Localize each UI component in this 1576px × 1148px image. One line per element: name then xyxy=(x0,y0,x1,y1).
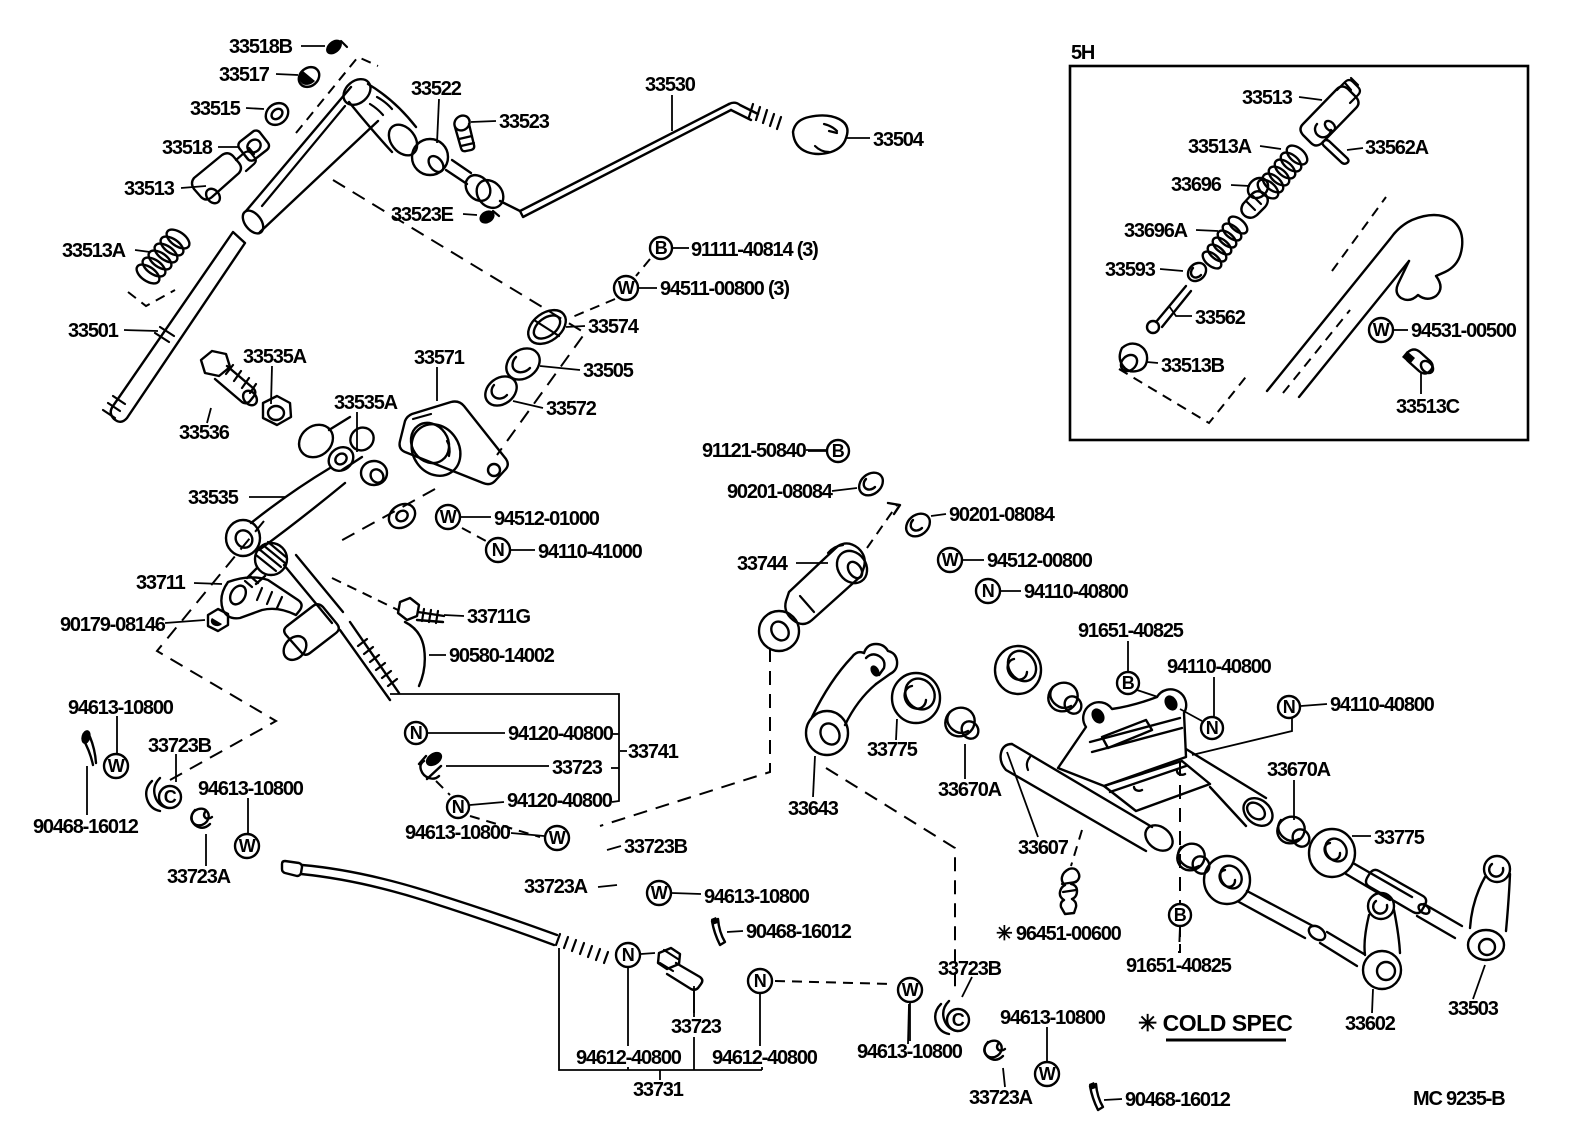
svg-text:33503: 33503 xyxy=(1448,998,1499,1020)
svg-text:33711: 33711 xyxy=(136,572,186,594)
svg-text:33723A: 33723A xyxy=(969,1087,1033,1109)
svg-text:33504: 33504 xyxy=(873,129,925,151)
svg-text:33562A: 33562A xyxy=(1365,137,1429,159)
svg-text:N: N xyxy=(410,723,423,743)
svg-text:W: W xyxy=(1039,1064,1056,1084)
svg-text:33562: 33562 xyxy=(1195,307,1246,329)
svg-text:✳ COLD SPEC: ✳ COLD SPEC xyxy=(1138,1010,1292,1036)
svg-text:33723B: 33723B xyxy=(148,735,212,757)
svg-text:W: W xyxy=(549,828,566,848)
svg-text:91651-40825: 91651-40825 xyxy=(1126,955,1232,977)
svg-text:5H: 5H xyxy=(1071,42,1095,64)
svg-text:90468-16012: 90468-16012 xyxy=(33,816,139,838)
svg-text:33723B: 33723B xyxy=(624,836,688,858)
svg-text:W: W xyxy=(239,836,256,856)
svg-text:33518: 33518 xyxy=(162,137,213,159)
svg-text:33513: 33513 xyxy=(124,178,175,200)
svg-text:90468-16012: 90468-16012 xyxy=(1125,1089,1231,1111)
svg-text:33518B: 33518B xyxy=(229,36,293,58)
svg-text:94120-40800: 94120-40800 xyxy=(508,723,614,745)
svg-text:W: W xyxy=(651,883,668,903)
svg-text:94511-00800 (3): 94511-00800 (3) xyxy=(660,278,789,300)
svg-text:33530: 33530 xyxy=(645,74,696,96)
svg-text:33602: 33602 xyxy=(1345,1013,1396,1035)
svg-text:33536: 33536 xyxy=(179,422,230,444)
svg-text:N: N xyxy=(492,540,505,560)
svg-text:91111-40814 (3): 91111-40814 (3) xyxy=(691,239,818,261)
svg-text:MC 9235-B: MC 9235-B xyxy=(1413,1088,1505,1110)
svg-text:33513A: 33513A xyxy=(62,240,126,262)
svg-text:W: W xyxy=(902,980,919,1000)
svg-text:90201-08084: 90201-08084 xyxy=(727,481,834,503)
svg-text:90201-08084: 90201-08084 xyxy=(949,504,1056,526)
svg-text:N: N xyxy=(982,581,995,601)
svg-text:N: N xyxy=(622,945,635,965)
svg-text:94612-40800: 94612-40800 xyxy=(576,1047,682,1069)
svg-text:B: B xyxy=(655,238,668,258)
svg-text:W: W xyxy=(942,550,959,570)
svg-text:94613-10800: 94613-10800 xyxy=(198,778,304,800)
svg-text:33535A: 33535A xyxy=(334,392,398,414)
svg-text:33723B: 33723B xyxy=(938,958,1002,980)
svg-text:N: N xyxy=(452,797,465,817)
svg-text:33696: 33696 xyxy=(1171,174,1222,196)
svg-text:N: N xyxy=(1283,697,1296,717)
svg-text:33513: 33513 xyxy=(1242,87,1293,109)
svg-text:33607: 33607 xyxy=(1018,837,1069,859)
svg-text:94110-40800: 94110-40800 xyxy=(1024,581,1129,603)
svg-text:33522: 33522 xyxy=(411,78,462,100)
svg-text:33517: 33517 xyxy=(219,64,270,86)
svg-text:90468-16012: 90468-16012 xyxy=(746,921,852,943)
svg-text:B: B xyxy=(832,441,845,461)
svg-text:33523: 33523 xyxy=(499,111,550,133)
svg-text:94512-01000: 94512-01000 xyxy=(494,508,600,530)
svg-text:33723: 33723 xyxy=(671,1016,722,1038)
svg-text:33515: 33515 xyxy=(190,98,241,120)
svg-text:C: C xyxy=(952,1010,965,1030)
svg-text:94531-00500: 94531-00500 xyxy=(1411,320,1517,342)
svg-text:94613-10800: 94613-10800 xyxy=(405,822,511,844)
svg-text:33723: 33723 xyxy=(552,757,603,779)
svg-text:33505: 33505 xyxy=(583,360,634,382)
svg-text:94110-40800: 94110-40800 xyxy=(1167,656,1272,678)
svg-text:33574: 33574 xyxy=(588,316,640,338)
svg-text:94613-10800: 94613-10800 xyxy=(68,697,174,719)
svg-text:90580-14002: 90580-14002 xyxy=(449,645,555,667)
svg-text:33523E: 33523E xyxy=(391,204,454,226)
svg-text:33535: 33535 xyxy=(188,487,239,509)
svg-text:94120-40800: 94120-40800 xyxy=(507,790,613,812)
svg-text:33643: 33643 xyxy=(788,798,839,820)
svg-text:C: C xyxy=(164,787,177,807)
svg-text:W: W xyxy=(108,756,125,776)
svg-text:94110-41000: 94110-41000 xyxy=(538,541,643,563)
svg-text:33571: 33571 xyxy=(414,347,465,369)
svg-text:33775: 33775 xyxy=(1374,827,1425,849)
svg-text:94613-10800: 94613-10800 xyxy=(857,1041,963,1063)
svg-text:N: N xyxy=(754,971,767,991)
svg-text:91121-50840: 91121-50840 xyxy=(702,440,807,462)
svg-text:N: N xyxy=(1206,718,1219,738)
svg-text:94613-10800: 94613-10800 xyxy=(704,886,810,908)
svg-text:33670A: 33670A xyxy=(938,779,1002,801)
svg-text:33744: 33744 xyxy=(737,553,789,575)
svg-text:B: B xyxy=(1174,905,1187,925)
svg-text:94110-40800: 94110-40800 xyxy=(1330,694,1435,716)
svg-text:33513A: 33513A xyxy=(1188,136,1252,158)
svg-text:33513C: 33513C xyxy=(1396,396,1460,418)
svg-text:33775: 33775 xyxy=(867,739,918,761)
svg-text:90179-08146: 90179-08146 xyxy=(60,614,166,636)
svg-text:94512-00800: 94512-00800 xyxy=(987,550,1093,572)
svg-text:91651-40825: 91651-40825 xyxy=(1078,620,1184,642)
svg-text:33593: 33593 xyxy=(1105,259,1156,281)
svg-text:33711G: 33711G xyxy=(467,606,531,628)
svg-text:33670A: 33670A xyxy=(1267,759,1331,781)
svg-text:33696A: 33696A xyxy=(1124,220,1188,242)
svg-text:33501: 33501 xyxy=(68,320,119,342)
svg-text:94613-10800: 94613-10800 xyxy=(1000,1007,1106,1029)
svg-text:33723A: 33723A xyxy=(524,876,588,898)
svg-text:33723A: 33723A xyxy=(167,866,231,888)
svg-text:W: W xyxy=(1373,320,1390,340)
svg-text:94612-40800: 94612-40800 xyxy=(712,1047,818,1069)
svg-text:B: B xyxy=(1122,673,1135,693)
svg-text:33731: 33731 xyxy=(633,1079,684,1101)
svg-text:✳ 96451-00600: ✳ 96451-00600 xyxy=(996,923,1122,945)
svg-text:33535A: 33535A xyxy=(243,346,307,368)
svg-text:W: W xyxy=(440,507,457,527)
svg-text:W: W xyxy=(618,278,635,298)
svg-text:33741: 33741 xyxy=(628,741,679,763)
svg-text:33572: 33572 xyxy=(546,398,597,420)
svg-text:33513B: 33513B xyxy=(1161,355,1225,377)
